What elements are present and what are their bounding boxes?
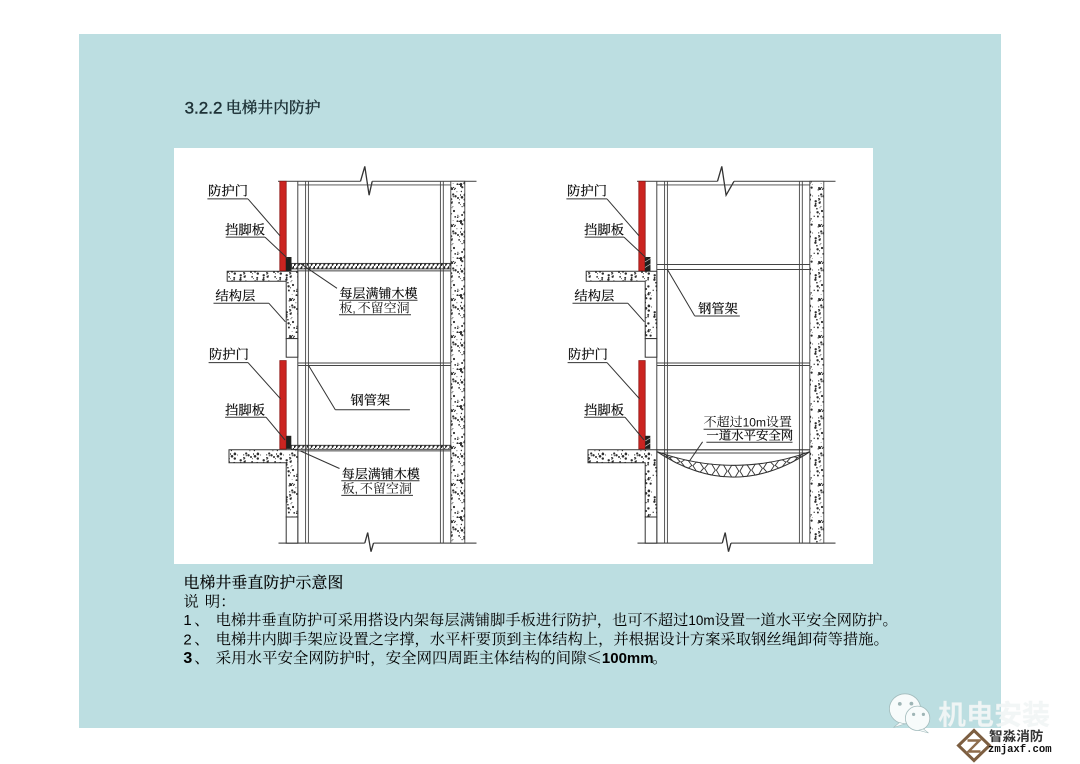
svg-text:,: , bbox=[355, 484, 358, 496]
svg-text:1: 1 bbox=[183, 612, 191, 629]
svg-text:100mm: 100mm bbox=[602, 650, 654, 667]
svg-text:3.2.2: 3.2.2 bbox=[185, 99, 223, 118]
svg-text:10m: 10m bbox=[743, 415, 766, 429]
svg-text:2: 2 bbox=[183, 631, 191, 648]
svg-text:3: 3 bbox=[183, 650, 192, 667]
svg-text:,: , bbox=[353, 303, 356, 315]
svg-text:10m: 10m bbox=[688, 613, 714, 628]
svg-text:zmjaxf.com: zmjaxf.com bbox=[988, 744, 1052, 756]
